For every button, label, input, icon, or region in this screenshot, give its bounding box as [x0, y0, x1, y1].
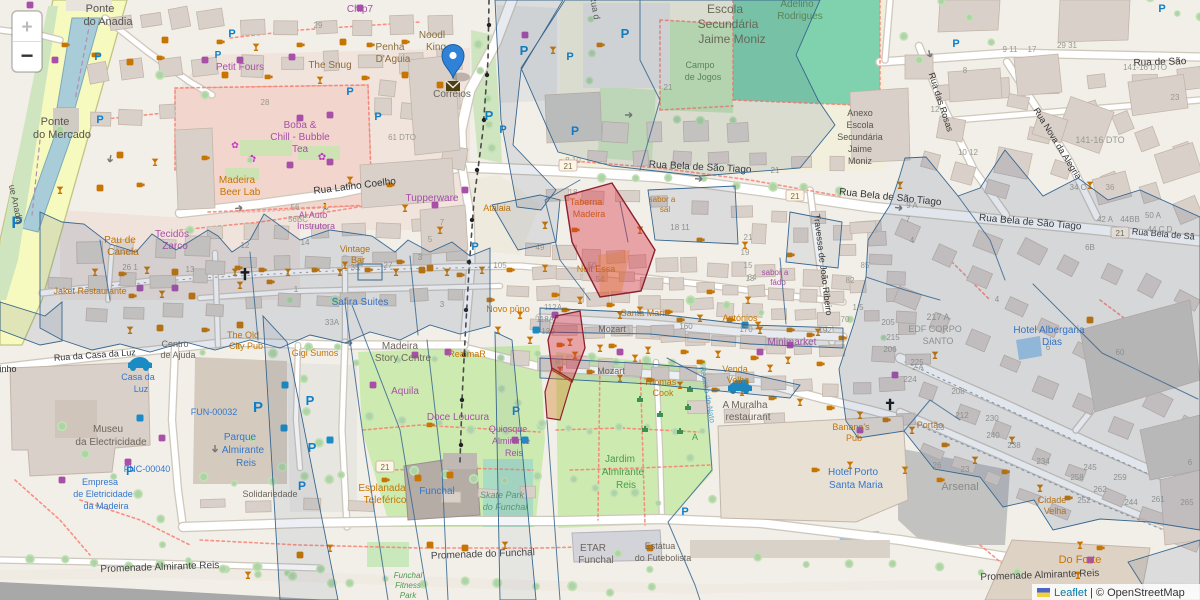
svg-text:P: P [1158, 3, 1165, 15]
svg-text:Museu: Museu [93, 424, 123, 435]
svg-text:56: 56 [291, 203, 300, 212]
svg-text:−: − [21, 43, 34, 68]
svg-text:P: P [952, 38, 959, 50]
svg-text:RealmaR: RealmaR [448, 349, 486, 359]
svg-text:Gigi Sumos: Gigi Sumos [292, 348, 339, 358]
svg-text:Park: Park [400, 591, 417, 600]
svg-text:Jaime: Jaime [848, 144, 872, 154]
svg-text:P: P [471, 241, 478, 253]
svg-text:10 12: 10 12 [958, 148, 979, 157]
svg-text:12: 12 [931, 105, 940, 114]
svg-text:Leaflet: Leaflet [1054, 587, 1087, 599]
svg-text:Teleférico: Teleférico [364, 495, 407, 506]
svg-text:Reis: Reis [616, 480, 636, 491]
svg-text:P: P [96, 114, 103, 126]
svg-text:✿: ✿ [231, 140, 239, 150]
svg-text:7: 7 [440, 218, 445, 227]
svg-text:do Anadia: do Anadia [84, 16, 134, 28]
svg-text:Madeira: Madeira [219, 175, 256, 186]
svg-text:P: P [374, 111, 381, 123]
svg-text:15: 15 [744, 261, 753, 270]
svg-text:Aquila: Aquila [391, 386, 419, 397]
svg-text:56BC: 56BC [288, 215, 308, 224]
svg-text:FNC-00040: FNC-00040 [124, 464, 171, 474]
svg-text:141-16 DTO: 141-16 DTO [1123, 63, 1167, 72]
svg-text:P: P [681, 506, 688, 518]
svg-text:Fitness: Fitness [395, 581, 421, 590]
svg-text:105: 105 [493, 261, 507, 270]
svg-text:P: P [253, 399, 263, 416]
svg-text:Casa da: Casa da [121, 372, 155, 382]
svg-text:Novo pūno: Novo pūno [486, 304, 530, 314]
svg-text:Reis: Reis [236, 458, 256, 469]
svg-text:Parque: Parque [224, 432, 257, 443]
svg-text:FUN-00032: FUN-00032 [191, 407, 238, 417]
svg-text:29: 29 [314, 21, 323, 30]
svg-text:Chill - Bubble: Chill - Bubble [270, 132, 330, 143]
svg-text:21: 21 [791, 192, 800, 201]
svg-text:36: 36 [1106, 183, 1115, 192]
svg-text:Almirante: Almirante [602, 467, 645, 478]
svg-text:Funchal: Funchal [419, 486, 455, 497]
svg-text:23: 23 [1171, 93, 1180, 102]
svg-text:do Futebolista: do Futebolista [635, 553, 692, 563]
svg-text:do Mercado: do Mercado [33, 129, 91, 141]
svg-text:sabor a: sabor a [762, 268, 789, 277]
svg-text:Almirante: Almirante [222, 445, 265, 456]
svg-text:Esplanada: Esplanada [358, 483, 406, 494]
svg-text:Tea: Tea [292, 144, 309, 155]
svg-text:Funchal: Funchal [394, 571, 423, 580]
svg-text:fádo: fádo [770, 278, 786, 287]
svg-text:Secundária: Secundária [837, 132, 883, 142]
svg-text:da Electricidade: da Electricidade [75, 437, 147, 448]
svg-text:| © OpenStreetMap: | © OpenStreetMap [1090, 587, 1185, 599]
svg-text:Story Centre: Story Centre [375, 353, 432, 364]
svg-text:Arsenal: Arsenal [941, 481, 978, 493]
svg-text:restaurant: restaurant [725, 412, 770, 423]
svg-text:Do Forte: Do Forte [1059, 554, 1102, 566]
svg-text:A Muralha: A Muralha [722, 400, 767, 411]
svg-text:Madeira: Madeira [382, 341, 419, 352]
svg-text:Funchal: Funchal [578, 555, 614, 566]
svg-text:28: 28 [261, 98, 270, 107]
svg-text:Santa Maria: Santa Maria [829, 480, 883, 491]
svg-text:Antónios: Antónios [722, 313, 758, 323]
svg-text:da Madeira: da Madeira [83, 501, 128, 511]
svg-text:Noodl: Noodl [419, 30, 445, 41]
svg-text:Anexo: Anexo [847, 108, 873, 118]
svg-text:Tecidos: Tecidos [155, 229, 189, 240]
svg-text:Empresa: Empresa [82, 477, 118, 487]
svg-text:29 31: 29 31 [1057, 41, 1078, 50]
svg-text:Hotel Porto: Hotel Porto [828, 467, 878, 478]
svg-text:P: P [346, 86, 353, 98]
svg-text:✿: ✿ [318, 152, 326, 163]
svg-text:Ponte: Ponte [41, 116, 70, 128]
svg-text:Escola: Escola [846, 120, 873, 130]
svg-text:D'Aguia: D'Aguia [376, 54, 411, 65]
svg-text:P: P [485, 108, 494, 123]
svg-text:17: 17 [1028, 45, 1037, 54]
svg-text:5: 5 [428, 235, 433, 244]
svg-text:Estátua: Estátua [645, 541, 676, 551]
svg-text:The Snug: The Snug [308, 60, 351, 71]
svg-text:8: 8 [963, 66, 968, 75]
svg-text:P: P [94, 51, 101, 63]
svg-text:ETAR: ETAR [580, 543, 606, 554]
svg-text:82: 82 [846, 276, 855, 285]
svg-text:inho: inho [0, 364, 17, 374]
svg-text:P: P [228, 28, 235, 40]
svg-text:Penha: Penha [376, 42, 405, 53]
svg-text:13: 13 [746, 274, 755, 283]
svg-text:141-16 DTO: 141-16 DTO [1075, 135, 1124, 145]
svg-text:Boba &: Boba & [284, 120, 317, 131]
svg-text:21: 21 [381, 463, 390, 472]
svg-text:Tupperware: Tupperware [406, 193, 459, 204]
svg-text:21: 21 [744, 233, 753, 242]
svg-text:Chip7: Chip7 [347, 4, 374, 15]
svg-text:+: + [21, 17, 32, 38]
svg-text:9 11: 9 11 [1003, 45, 1019, 54]
svg-text:70: 70 [841, 315, 850, 324]
svg-text:A: A [692, 432, 698, 442]
svg-text:P: P [215, 50, 222, 61]
svg-text:Beer Lab: Beer Lab [220, 187, 261, 198]
svg-text:Moniz: Moniz [848, 156, 873, 166]
svg-text:19: 19 [741, 248, 750, 257]
svg-text:de Ajuda: de Ajuda [160, 350, 195, 360]
svg-text:de Eletricidade: de Eletricidade [73, 489, 133, 499]
svg-text:Luz: Luz [134, 384, 149, 394]
svg-text:Cook: Cook [652, 388, 674, 398]
svg-text:Petit Fours: Petit Fours [216, 62, 264, 73]
svg-text:Jardim: Jardim [605, 454, 635, 465]
svg-text:61 DTO: 61 DTO [388, 133, 416, 142]
svg-text:21: 21 [564, 162, 573, 171]
svg-text:P: P [306, 393, 315, 408]
svg-text:Ponte: Ponte [86, 3, 115, 15]
